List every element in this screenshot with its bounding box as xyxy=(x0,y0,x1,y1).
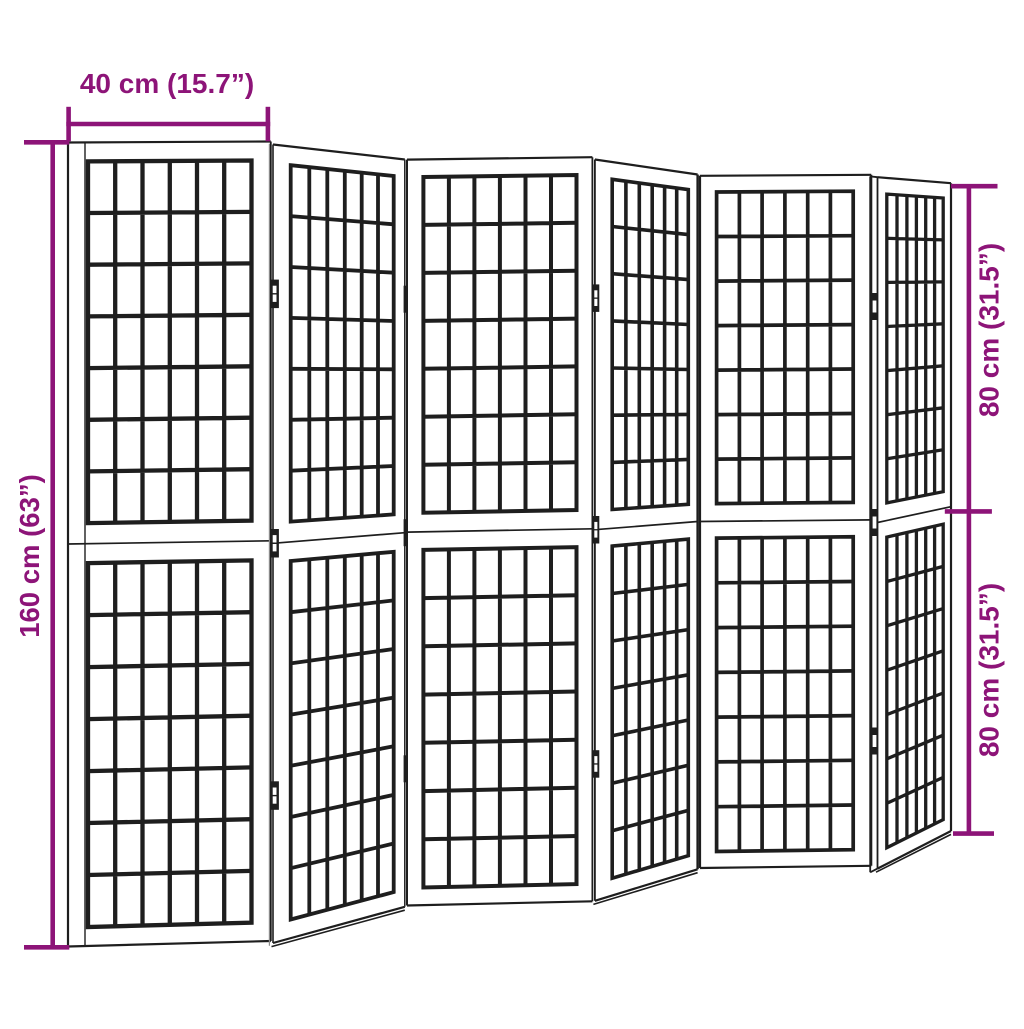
svg-text:80 cm (31.5”): 80 cm (31.5”) xyxy=(974,243,1005,417)
svg-text:40 cm (15.7”): 40 cm (15.7”) xyxy=(80,68,254,99)
svg-text:160 cm (63”): 160 cm (63”) xyxy=(14,474,45,638)
svg-text:80 cm (31.5”): 80 cm (31.5”) xyxy=(974,583,1005,757)
